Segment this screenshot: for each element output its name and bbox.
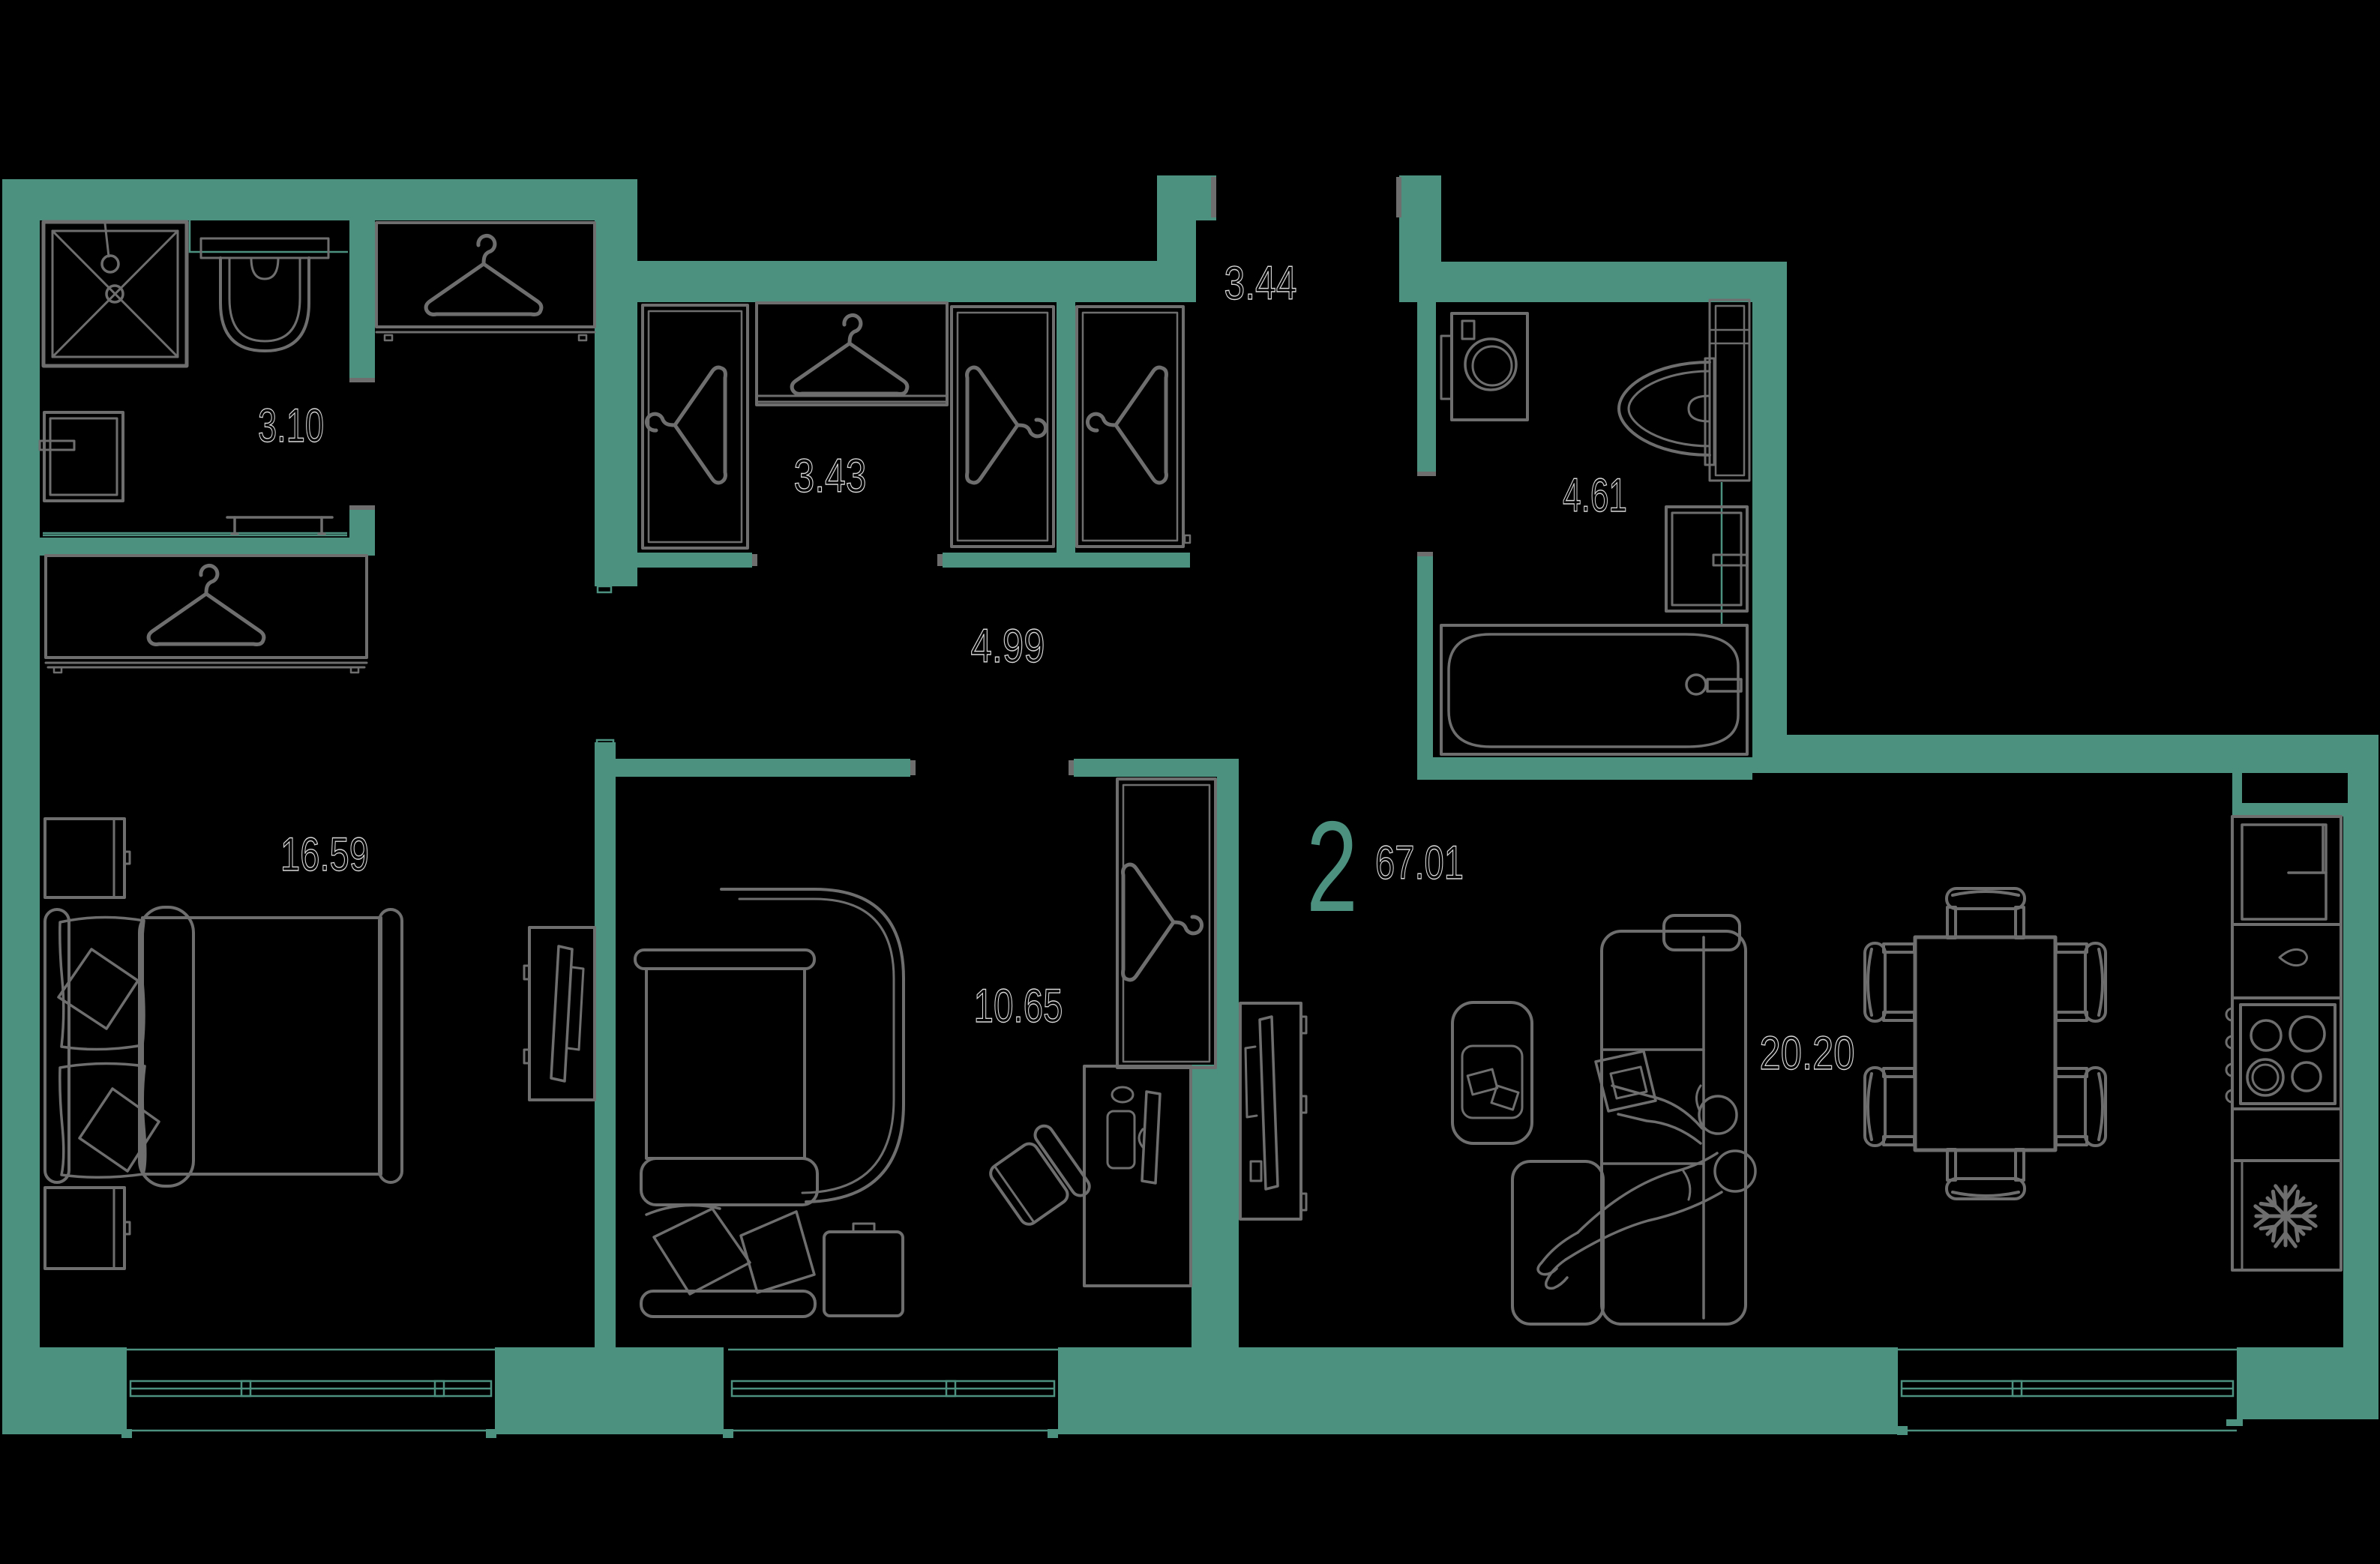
svg-text:4.61: 4.61 (1563, 469, 1627, 522)
svg-text:2: 2 (1306, 794, 1358, 939)
svg-text:10.65: 10.65 (974, 980, 1063, 1032)
svg-text:67.01: 67.01 (1375, 837, 1464, 889)
svg-text:3.43: 3.43 (794, 450, 867, 502)
svg-text:4.99: 4.99 (971, 620, 1045, 673)
svg-text:16.59: 16.59 (280, 828, 369, 881)
svg-text:20.20: 20.20 (1760, 1027, 1855, 1080)
svg-text:3.10: 3.10 (258, 400, 324, 452)
svg-text:3.44: 3.44 (1224, 257, 1297, 310)
